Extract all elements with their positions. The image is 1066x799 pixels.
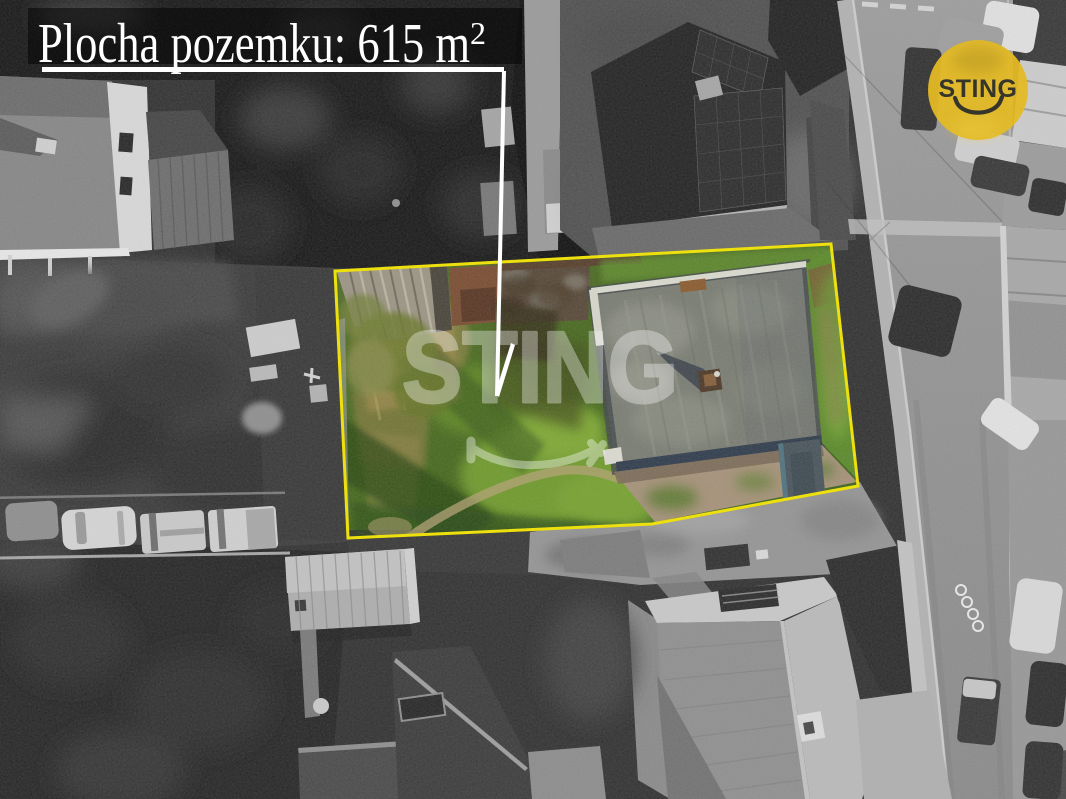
svg-text:STING: STING xyxy=(939,75,1018,103)
svg-text:Plocha pozemku: 615 m: Plocha pozemku: 615 m xyxy=(38,13,470,75)
svg-text:2: 2 xyxy=(470,15,486,51)
